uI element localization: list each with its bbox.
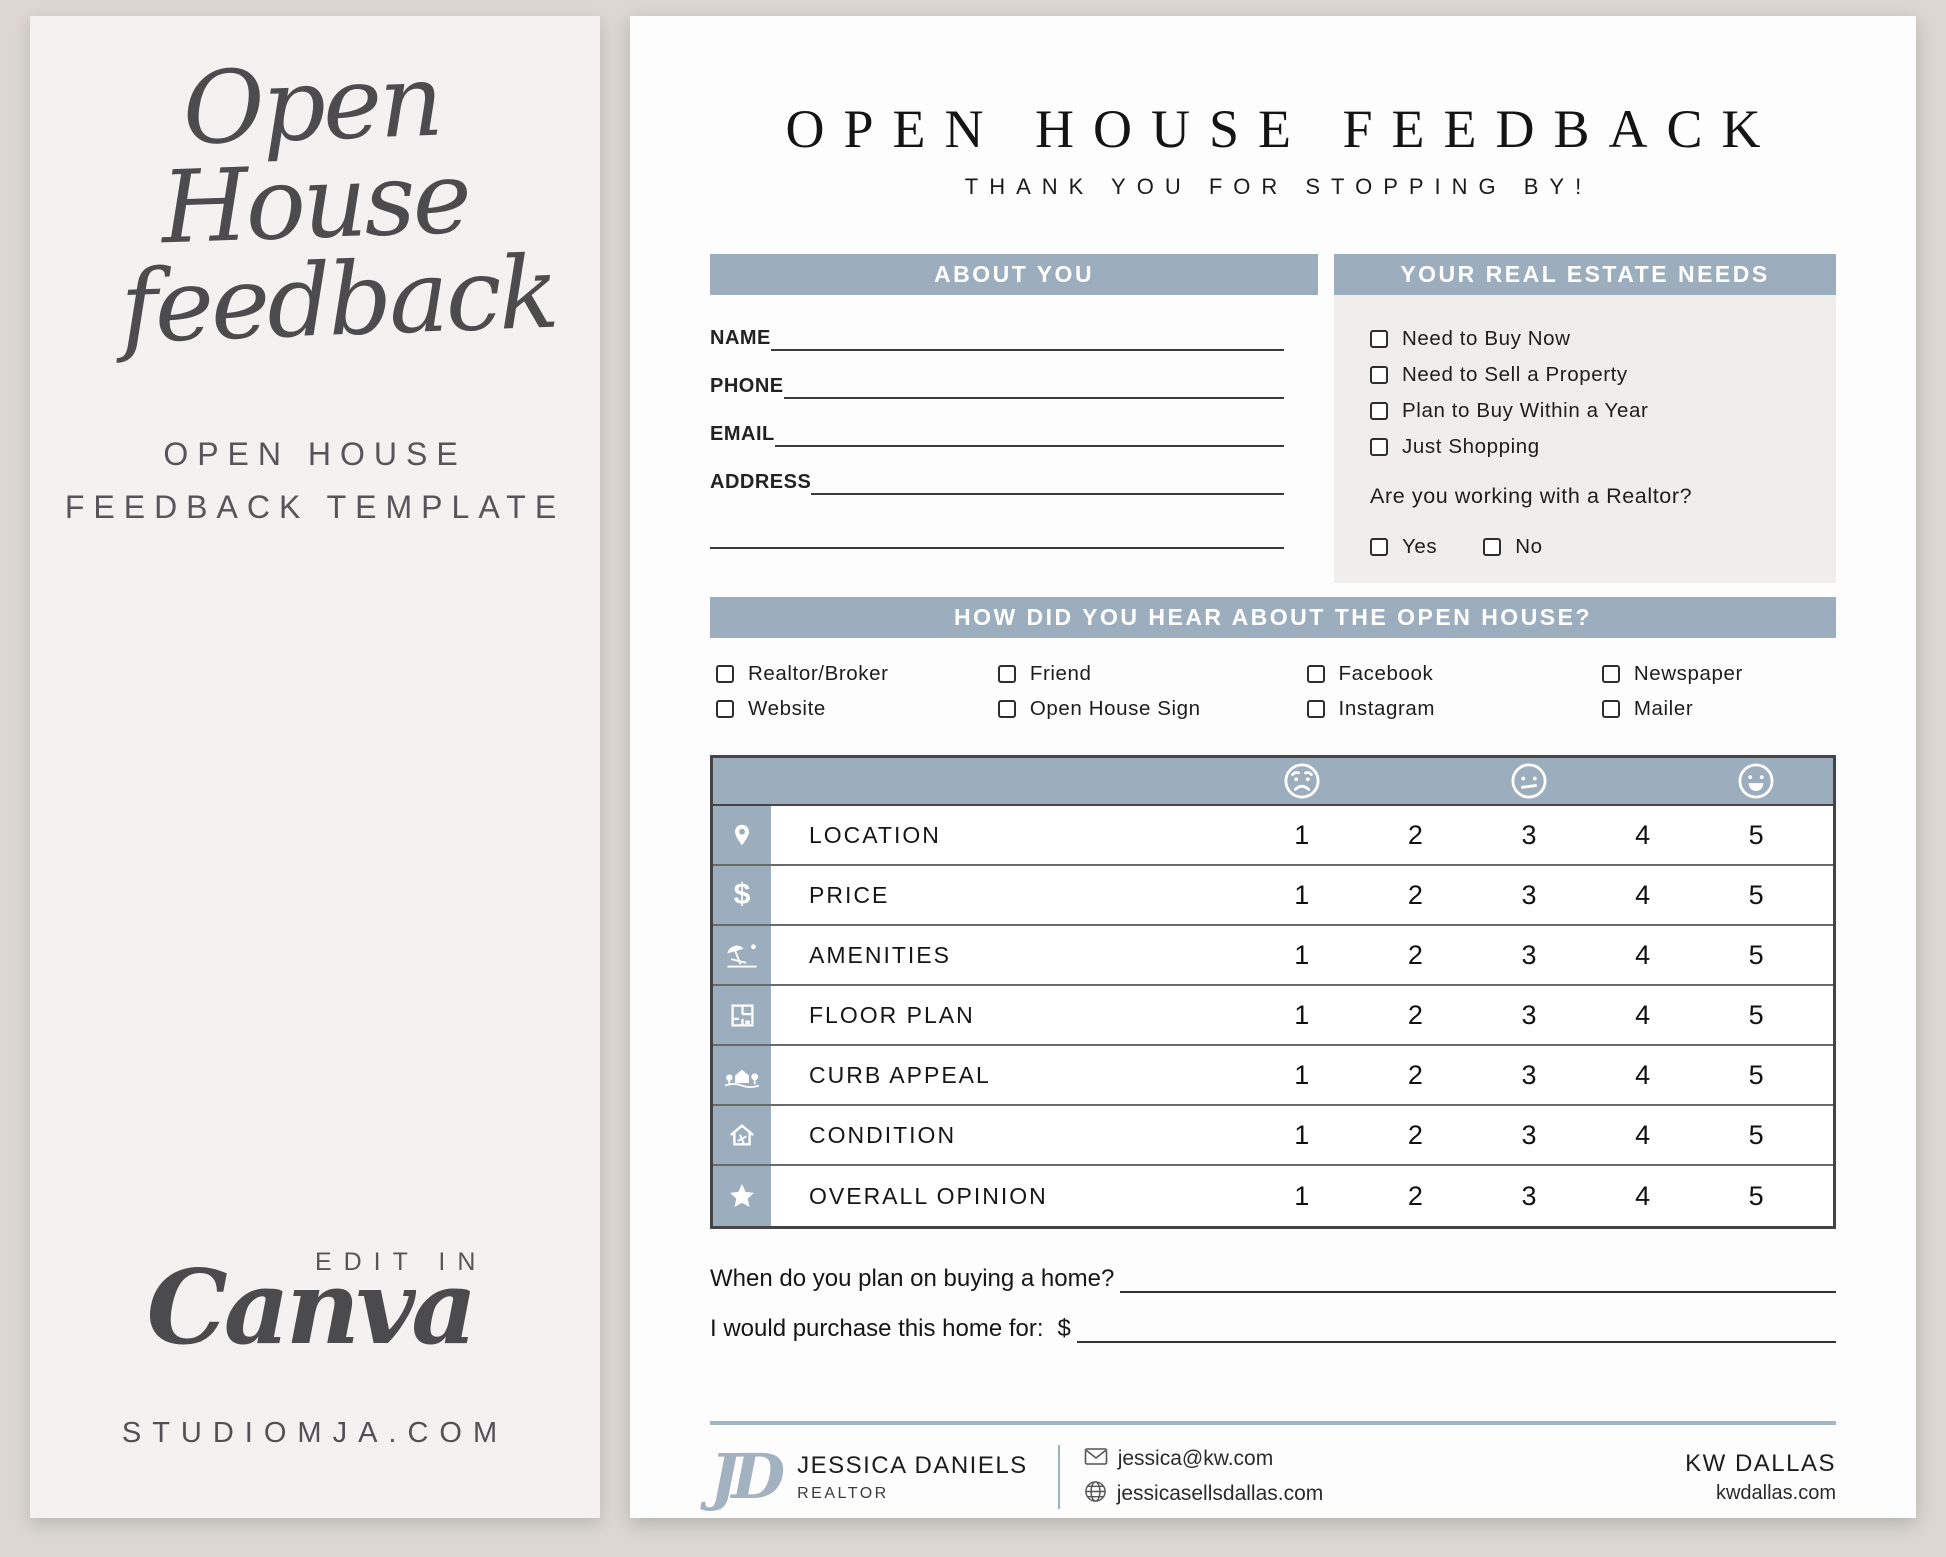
checkbox-icon[interactable]	[998, 665, 1016, 683]
about-you-header: ABOUT YOU	[710, 254, 1318, 295]
rating-row-label: LOCATION	[771, 806, 1245, 864]
hear-about-options: Realtor/Broker Friend Facebook Newspaper…	[710, 662, 1836, 721]
option-label: Just Shopping	[1402, 435, 1540, 459]
header-faces	[1245, 758, 1813, 804]
option-mailer[interactable]: Mailer	[1602, 697, 1830, 721]
rating-2[interactable]: 2	[1359, 986, 1473, 1044]
rating-row-label: AMENITIES	[771, 926, 1245, 984]
house-tools-icon	[713, 1106, 771, 1164]
star-icon	[713, 1166, 771, 1226]
rating-4[interactable]: 4	[1586, 986, 1700, 1044]
script-title-line1: Open House	[25, 46, 601, 262]
form-subtitle: THANK YOU FOR STOPPING BY!	[710, 174, 1836, 200]
footer-vertical-divider	[1058, 1445, 1060, 1509]
phone-field-label: PHONE	[710, 375, 784, 399]
face-spacer	[1359, 758, 1473, 804]
floor-plan-icon	[713, 986, 771, 1044]
header-label-spacer	[771, 758, 1245, 804]
rating-1[interactable]: 1	[1245, 1106, 1359, 1164]
form-title: OPEN HOUSE FEEDBACK	[710, 98, 1836, 160]
currency-symbol: $	[1058, 1315, 1071, 1343]
realtor-yes-no: Yes No	[1370, 535, 1800, 559]
office-block: KW DALLAS kwdallas.com	[1685, 1450, 1836, 1505]
rating-4[interactable]: 4	[1586, 866, 1700, 924]
rating-2[interactable]: 2	[1359, 806, 1473, 864]
rating-row-location: LOCATION 1 2 3 4 5	[713, 806, 1833, 866]
feedback-form-card: OPEN HOUSE FEEDBACK THANK YOU FOR STOPPI…	[630, 16, 1916, 1518]
contact-block: jessica@kw.com jessicasellsdallas.com	[1084, 1447, 1324, 1507]
hear-about-header: HOW DID YOU HEAR ABOUT THE OPEN HOUSE?	[710, 597, 1836, 638]
about-needs-section: NAME PHONE EMAIL ADDRESS	[710, 295, 1836, 583]
rating-4[interactable]: 4	[1586, 1046, 1700, 1104]
option-need-to-sell[interactable]: Need to Sell a Property	[1370, 363, 1800, 387]
email-icon	[1084, 1447, 1108, 1470]
agent-block: JESSICA DANIELS REALTOR	[797, 1452, 1028, 1503]
question-when-buying: When do you plan on buying a home?	[710, 1257, 1836, 1293]
script-title-line2: feedback	[72, 242, 605, 358]
rating-2[interactable]: 2	[1359, 926, 1473, 984]
address-field-line[interactable]	[811, 447, 1284, 495]
rating-row-label: FLOOR PLAN	[771, 986, 1245, 1044]
email-field: EMAIL	[710, 399, 1284, 447]
question-label: When do you plan on buying a home?	[710, 1265, 1114, 1293]
face-spacer	[1586, 758, 1700, 804]
rating-scale: 1 2 3 4 5	[1245, 1046, 1813, 1104]
rating-2[interactable]: 2	[1359, 1166, 1473, 1226]
rating-4[interactable]: 4	[1586, 806, 1700, 864]
rating-row-overall-opinion: OVERALL OPINION 1 2 3 4 5	[713, 1166, 1833, 1226]
checkbox-icon[interactable]	[1307, 700, 1325, 718]
option-friend[interactable]: Friend	[998, 662, 1307, 686]
rating-row-price: $ PRICE 1 2 3 4 5	[713, 866, 1833, 926]
agent-website-row: jessicasellsdallas.com	[1084, 1480, 1324, 1507]
rating-2[interactable]: 2	[1359, 1106, 1473, 1164]
agent-email-row: jessica@kw.com	[1084, 1447, 1324, 1470]
script-title: Open House feedback	[25, 46, 605, 360]
agent-website[interactable]: jessicasellsdallas.com	[1117, 1483, 1324, 1504]
rating-scale: 1 2 3 4 5	[1245, 926, 1813, 984]
header-icon-spacer	[713, 758, 771, 804]
rating-row-label: CONDITION	[771, 1106, 1245, 1164]
option-label: Instagram	[1339, 697, 1436, 721]
option-label: Friend	[1030, 662, 1092, 686]
neutral-face-icon	[1472, 758, 1586, 804]
option-no[interactable]: No	[1483, 535, 1542, 559]
agent-email[interactable]: jessica@kw.com	[1118, 1448, 1274, 1469]
option-realtor-broker[interactable]: Realtor/Broker	[716, 662, 998, 686]
option-website[interactable]: Website	[716, 697, 998, 721]
rating-3[interactable]: 3	[1472, 1046, 1586, 1104]
globe-icon	[1084, 1480, 1107, 1507]
rating-scale: 1 2 3 4 5	[1245, 1106, 1813, 1164]
rating-row-label: CURB APPEAL	[771, 1046, 1245, 1104]
option-label: Facebook	[1339, 662, 1434, 686]
rating-1[interactable]: 1	[1245, 926, 1359, 984]
rating-row-curb-appeal: CURB APPEAL 1 2 3 4 5	[713, 1046, 1833, 1106]
checkbox-icon[interactable]	[716, 700, 734, 718]
option-label: Realtor/Broker	[748, 662, 889, 686]
question-answer-line[interactable]	[1120, 1257, 1836, 1293]
option-facebook[interactable]: Facebook	[1307, 662, 1602, 686]
phone-field: PHONE	[710, 351, 1284, 399]
checkbox-icon[interactable]	[1370, 366, 1388, 384]
rating-1[interactable]: 1	[1245, 1046, 1359, 1104]
agent-footer: JD JESSICA DANIELS REALTOR jessica@kw.co…	[710, 1445, 1836, 1509]
left-preview-panel: Open House feedback OPEN HOUSE FEEDBACK …	[30, 16, 600, 1518]
section-headers: ABOUT YOU YOUR REAL ESTATE NEEDS	[710, 254, 1836, 295]
house-landscape-icon	[713, 1046, 771, 1104]
office-name: KW DALLAS	[1685, 1450, 1836, 1478]
address-field-label: ADDRESS	[710, 471, 811, 495]
option-newspaper[interactable]: Newspaper	[1602, 662, 1830, 686]
checkbox-icon[interactable]	[998, 700, 1016, 718]
rating-scale: 1 2 3 4 5	[1245, 1166, 1813, 1226]
real-estate-needs-header: YOUR REAL ESTATE NEEDS	[1334, 254, 1836, 295]
option-label: Yes	[1402, 535, 1437, 559]
rating-5[interactable]: 5	[1699, 986, 1813, 1044]
office-website[interactable]: kwdallas.com	[1685, 1482, 1836, 1505]
option-label: Website	[748, 697, 826, 721]
rating-4[interactable]: 4	[1586, 926, 1700, 984]
rating-3[interactable]: 3	[1472, 1106, 1586, 1164]
name-field-label: NAME	[710, 327, 771, 351]
checkbox-icon[interactable]	[1602, 665, 1620, 683]
real-estate-needs-panel: Need to Buy Now Need to Sell a Property …	[1334, 295, 1836, 583]
rating-5[interactable]: 5	[1699, 806, 1813, 864]
option-label: Open House Sign	[1030, 697, 1201, 721]
rating-3[interactable]: 3	[1472, 1166, 1586, 1226]
address-field-line2[interactable]	[710, 495, 1284, 549]
address-field-row2	[710, 495, 1284, 549]
rating-2[interactable]: 2	[1359, 1046, 1473, 1104]
panel-caption: OPEN HOUSE FEEDBACK TEMPLATE	[65, 428, 565, 534]
rating-scale: 1 2 3 4 5	[1245, 986, 1813, 1044]
rating-5[interactable]: 5	[1699, 1166, 1813, 1226]
checkbox-icon[interactable]	[1370, 538, 1388, 556]
sad-face-icon	[1245, 758, 1359, 804]
rating-5[interactable]: 5	[1699, 926, 1813, 984]
rating-scale: 1 2 3 4 5	[1245, 806, 1813, 864]
question-answer-line[interactable]	[1077, 1307, 1836, 1343]
checkbox-icon[interactable]	[1483, 538, 1501, 556]
option-just-shopping[interactable]: Just Shopping	[1370, 435, 1800, 459]
option-label: No	[1515, 535, 1542, 559]
rating-4[interactable]: 4	[1586, 1166, 1700, 1226]
rating-1[interactable]: 1	[1245, 866, 1359, 924]
about-you-fields: NAME PHONE EMAIL ADDRESS	[710, 295, 1318, 583]
open-house-feedback-listing: Open House feedback OPEN HOUSE FEEDBACK …	[0, 0, 1946, 1557]
checkbox-icon[interactable]	[1307, 665, 1325, 683]
rating-row-floor-plan: FLOOR PLAN 1 2 3 4 5	[713, 986, 1833, 1046]
canva-wordmark: Canva	[147, 1257, 474, 1359]
footer-divider	[710, 1421, 1836, 1425]
email-field-label: EMAIL	[710, 423, 775, 447]
rating-5[interactable]: 5	[1699, 866, 1813, 924]
email-field-line[interactable]	[775, 399, 1284, 447]
agent-monogram: JD	[710, 1446, 777, 1508]
happy-face-icon	[1699, 758, 1813, 804]
rating-table-header	[713, 758, 1833, 806]
checkbox-icon[interactable]	[716, 665, 734, 683]
rating-1[interactable]: 1	[1245, 806, 1359, 864]
rating-scale: 1 2 3 4 5	[1245, 866, 1813, 924]
agent-role: REALTOR	[797, 1485, 1028, 1503]
address-field: ADDRESS	[710, 447, 1284, 495]
panel-caption-line2: FEEDBACK TEMPLATE	[65, 481, 565, 534]
rating-1[interactable]: 1	[1245, 1166, 1359, 1226]
rating-row-label: OVERALL OPINION	[771, 1166, 1245, 1226]
rating-3[interactable]: 3	[1472, 866, 1586, 924]
dollar-icon: $	[713, 866, 771, 924]
checkbox-icon[interactable]	[1602, 700, 1620, 718]
option-label: Newspaper	[1634, 662, 1743, 686]
name-field: NAME	[710, 303, 1284, 351]
rating-table: LOCATION 1 2 3 4 5 $ PRICE 1 2 3	[710, 755, 1836, 1229]
agent-name: JESSICA DANIELS	[797, 1452, 1028, 1480]
studio-website: STUDIOMJA.COM	[122, 1417, 508, 1450]
rating-row-label: PRICE	[771, 866, 1245, 924]
option-instagram[interactable]: Instagram	[1307, 697, 1602, 721]
canva-logo: EDIT IN Canva	[147, 1248, 484, 1359]
option-open-house-sign[interactable]: Open House Sign	[998, 697, 1307, 721]
question-label: I would purchase this home for:	[710, 1315, 1044, 1343]
realtor-question: Are you working with a Realtor?	[1370, 484, 1800, 509]
option-need-to-buy-now[interactable]: Need to Buy Now	[1370, 327, 1800, 351]
beach-umbrella-icon	[713, 926, 771, 984]
panel-caption-line1: OPEN HOUSE	[65, 428, 565, 481]
option-label: Mailer	[1634, 697, 1693, 721]
rating-3[interactable]: 3	[1472, 926, 1586, 984]
checkbox-icon[interactable]	[1370, 402, 1388, 420]
rating-5[interactable]: 5	[1699, 1106, 1813, 1164]
option-label: Plan to Buy Within a Year	[1402, 399, 1648, 423]
option-yes[interactable]: Yes	[1370, 535, 1437, 559]
option-plan-to-buy[interactable]: Plan to Buy Within a Year	[1370, 399, 1800, 423]
rating-row-amenities: AMENITIES 1 2 3 4 5	[713, 926, 1833, 986]
location-pin-icon	[713, 806, 771, 864]
rating-5[interactable]: 5	[1699, 1046, 1813, 1104]
rating-3[interactable]: 3	[1472, 986, 1586, 1044]
option-label: Need to Buy Now	[1402, 327, 1571, 351]
rating-3[interactable]: 3	[1472, 806, 1586, 864]
question-purchase-price: I would purchase this home for: $	[710, 1307, 1836, 1343]
rating-row-condition: CONDITION 1 2 3 4 5	[713, 1106, 1833, 1166]
checkbox-icon[interactable]	[1370, 438, 1388, 456]
checkbox-icon[interactable]	[1370, 330, 1388, 348]
name-field-line[interactable]	[771, 303, 1284, 351]
rating-1[interactable]: 1	[1245, 986, 1359, 1044]
rating-2[interactable]: 2	[1359, 866, 1473, 924]
option-label: Need to Sell a Property	[1402, 363, 1628, 387]
rating-4[interactable]: 4	[1586, 1106, 1700, 1164]
phone-field-line[interactable]	[784, 351, 1284, 399]
